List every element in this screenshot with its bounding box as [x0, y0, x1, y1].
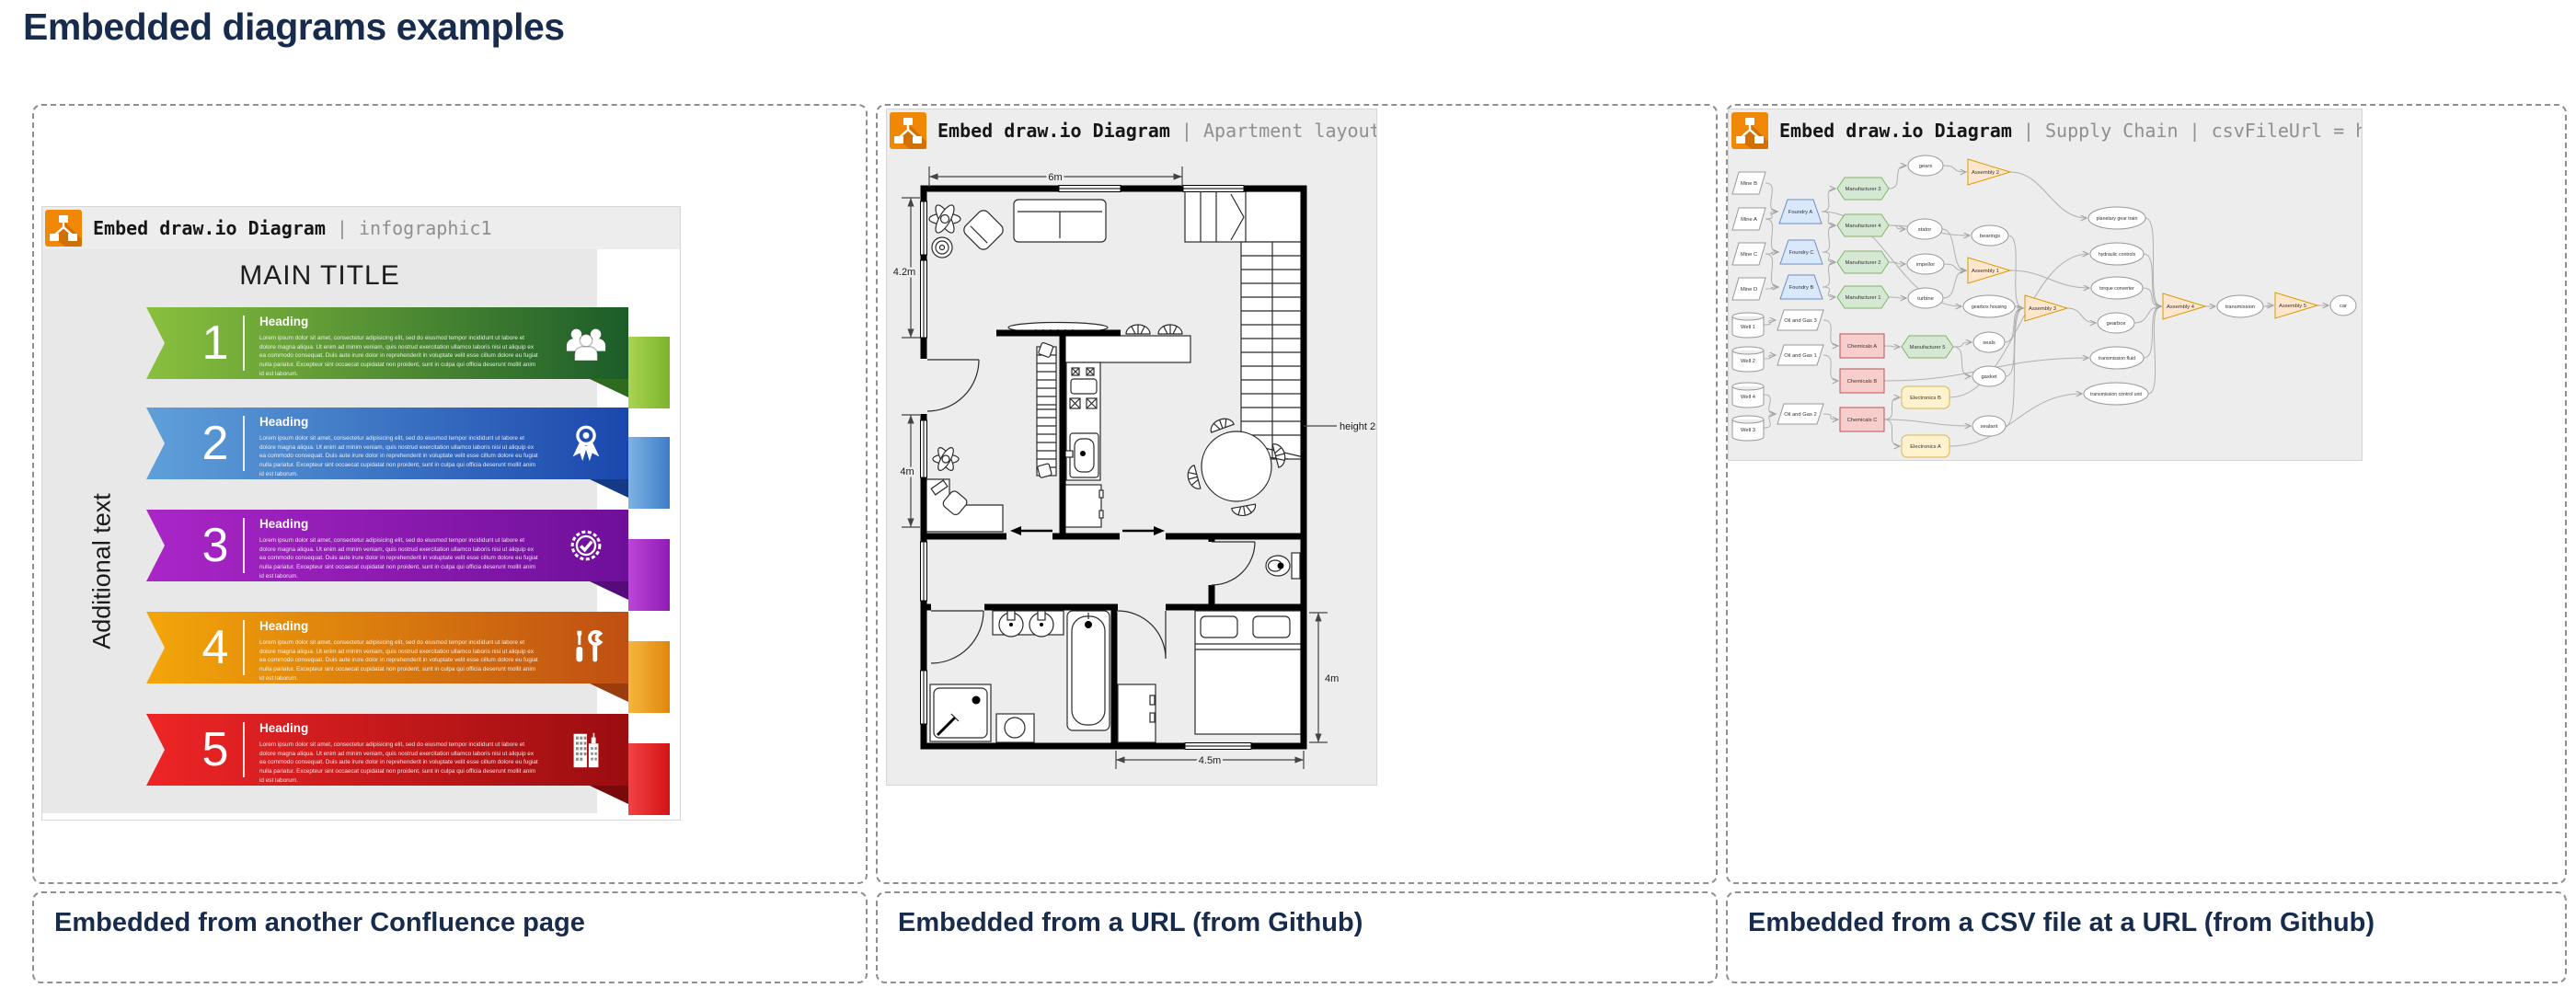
svg-text:Manufacturer 1: Manufacturer 1: [1846, 295, 1881, 301]
drawio-macro-header: Embed draw.io Diagram | Apartment layout: [887, 109, 1376, 152]
svg-text:Well 2: Well 2: [1741, 359, 1755, 364]
svg-text:Chemicals B: Chemicals B: [1847, 379, 1878, 385]
infographic-banner: 3 Heading Lorem ipsum dolor sit amet, co…: [146, 510, 628, 581]
dim-bottom: 4.5m: [1199, 755, 1221, 766]
graph-node-man2: Manufacturer 2: [1837, 251, 1889, 273]
graph-edge: [1822, 189, 1835, 212]
graph-edge: [1889, 166, 1906, 189]
graph-edge: [1889, 262, 1905, 264]
svg-text:car: car: [2340, 304, 2347, 309]
svg-text:transmission control unit: transmission control unit: [2090, 392, 2142, 397]
graph-edge: [1765, 287, 1778, 289]
graph-edge: [1823, 414, 1838, 419]
drawio-logo-icon: [890, 112, 926, 149]
svg-text:gearbox: gearbox: [2107, 321, 2126, 327]
graph-edge: [1823, 287, 1835, 297]
graph-node-og1: Oil and Gas 1: [1777, 345, 1823, 365]
graph-node-og3: Oil and Gas 3: [1777, 310, 1823, 330]
graph-edge: [1823, 252, 1835, 262]
infographic-body-text: Lorem ipsum dolor sit amet, consectetur …: [259, 334, 540, 379]
graph-edge: [1943, 166, 1966, 172]
graph-node-mineA: Mine A: [1732, 208, 1765, 230]
svg-text:Foundry A: Foundry A: [1788, 210, 1813, 215]
graph-edge: [1884, 419, 1971, 426]
infographic-body-text: Lorem ipsum dolor sit amet, consectetur …: [259, 536, 540, 581]
graph-node-car: car: [2330, 295, 2356, 316]
infographic-body-text: Lorem ipsum dolor sit amet, consectetur …: [259, 638, 540, 684]
infographic-ribbon-fold: [590, 379, 628, 397]
graph-edge: [1823, 355, 1838, 381]
svg-text:stator: stator: [1918, 227, 1932, 233]
graph-node-bearings: bearings: [1972, 225, 2008, 246]
infographic-divider: [243, 316, 245, 371]
graph-node-impellor: impellor: [1907, 254, 1944, 274]
graph-node-mineB: Mine B: [1732, 172, 1765, 194]
svg-text:transmission fluid: transmission fluid: [2099, 356, 2135, 362]
infographic-step-number: 5: [183, 714, 247, 786]
drawio-embed-infographic[interactable]: Embed draw.io Diagram | infographic1 MAI…: [41, 206, 681, 821]
infographic-ribbon-tail: [628, 539, 670, 611]
graph-edge: [2008, 236, 2023, 308]
graph-node-asm5: Assembly 5: [2275, 293, 2317, 318]
svg-text:torque converter: torque converter: [2099, 286, 2134, 292]
graph-node-gbhousing: gearbox housing: [1963, 295, 2015, 317]
badge-check-icon: [565, 524, 607, 567]
graph-node-mineC: Mine C: [1732, 243, 1765, 265]
graph-edge: [1884, 397, 1900, 419]
infographic-ribbon-tail: [628, 437, 670, 509]
svg-text:Manufacturer 2: Manufacturer 2: [1846, 260, 1881, 266]
macro-subtitle: | Apartment layout: [1181, 120, 1377, 142]
svg-text:Assembly 1: Assembly 1: [1972, 269, 1999, 274]
svg-text:Electronics B: Electronics B: [1910, 396, 1941, 401]
infographic-ribbon-fold: [590, 684, 628, 702]
macro-title: Embed draw.io Diagram: [937, 120, 1170, 142]
graph-edge: [1764, 414, 1776, 428]
caption-text: Embedded from a CSV file at a URL (from …: [1728, 893, 2565, 953]
graph-node-asm2: Assembly 2: [1968, 159, 2010, 185]
city-icon: [565, 729, 607, 771]
infographic-step-number: 1: [183, 307, 247, 379]
confluence-page: Embedded diagrams examples Embedded from…: [0, 0, 2576, 988]
svg-text:gasket: gasket: [1981, 374, 1996, 380]
graph-node-asm4: Assembly 4: [2163, 293, 2205, 319]
graph-node-sealant: sealant: [1972, 416, 2006, 436]
graph-node-elecA: Electronics A: [1902, 435, 1949, 457]
graph-edge: [1949, 394, 2082, 446]
infographic-banner: 4 Heading Lorem ipsum dolor sit amet, co…: [146, 612, 628, 684]
badge-check-icon: [565, 524, 607, 567]
svg-text:Well 1: Well 1: [1741, 325, 1755, 330]
graph-edge: [1884, 419, 1900, 446]
people-icon: [565, 322, 607, 364]
graph-edge: [1765, 212, 1777, 219]
svg-text:Chemicals C: Chemicals C: [1847, 418, 1878, 423]
infographic-divider: [243, 620, 245, 675]
macro-subtitle: | Supply Chain | csvFileUrl = ht: [2023, 120, 2363, 142]
apartment-floorplan: 6m 4.2m 4m 4m 4.5m height 2m: [887, 109, 1377, 786]
graph-node-foundryB: Foundry B: [1780, 275, 1823, 299]
svg-text:Mine D: Mine D: [1741, 287, 1757, 293]
graph-edge: [2010, 270, 2089, 288]
graph-edge: [2263, 305, 2273, 306]
graph-node-man4: Manufacturer 4: [1837, 214, 1889, 236]
graph-node-well2: Well 2: [1732, 347, 1764, 372]
svg-text:bearings: bearings: [1980, 234, 2000, 239]
svg-text:Mine A: Mine A: [1741, 217, 1757, 223]
drawio-macro-header: Embed draw.io Diagram | infographic1: [42, 207, 680, 249]
infographic-heading: Heading: [259, 517, 308, 531]
svg-text:Assembly 3: Assembly 3: [2029, 306, 2056, 312]
graph-edge: [2144, 306, 2161, 358]
svg-text:Mine C: Mine C: [1741, 252, 1757, 258]
graph-node-chemC: Chemicals C: [1840, 408, 1884, 431]
graph-node-stator: stator: [1907, 219, 1942, 239]
graph-edge: [2143, 288, 2161, 306]
graph-edge: [1764, 395, 1776, 414]
graph-node-turbine: turbine: [1908, 288, 1943, 308]
graph-node-chemB: Chemicals B: [1840, 369, 1884, 393]
macro-title: Embed draw.io Diagram: [1779, 120, 2012, 142]
macro-subtitle: | infographic1: [337, 217, 492, 239]
svg-text:Foundry C: Foundry C: [1788, 250, 1813, 256]
macro-title: Embed draw.io Diagram: [93, 217, 326, 239]
graph-node-transmission: transmission: [2217, 295, 2263, 317]
graph-node-asm3: Assembly 3: [2025, 295, 2067, 321]
graph-node-transfluid: transmission fluid: [2090, 347, 2144, 369]
graph-edge: [1764, 320, 1776, 325]
svg-text:seals: seals: [1983, 340, 1995, 346]
graph-edge: [1823, 320, 1838, 346]
graph-node-seals: seals: [1973, 332, 2005, 352]
graph-edge: [1953, 347, 1971, 376]
graph-edge: [1823, 225, 1835, 252]
svg-text:Oil and Gas 1: Oil and Gas 1: [1784, 353, 1816, 359]
infographic-body-text: Lorem ipsum dolor sit amet, consectetur …: [259, 434, 540, 479]
drawio-embed-supply-chain[interactable]: Mine BMine AMine CMine DWell 1Well 2Well…: [1728, 109, 2363, 461]
infographic-main-title: MAIN TITLE: [42, 260, 597, 292]
medal-icon: [565, 422, 607, 465]
infographic-divider: [243, 518, 245, 573]
svg-text:Assembly 2: Assembly 2: [1972, 170, 1999, 176]
dim-right: 4m: [1325, 673, 1339, 684]
infographic-step-number: 2: [183, 408, 247, 479]
graph-node-elecB: Electronics B: [1902, 386, 1949, 408]
infographic-ribbon-fold: [590, 479, 628, 498]
page-title: Embedded diagrams examples: [23, 6, 565, 49]
supply-chain-graph: Mine BMine AMine CMine DWell 1Well 2Well…: [1729, 109, 2363, 461]
graph-edge: [2010, 172, 2087, 218]
caption-text: Embedded from another Confluence page: [34, 893, 866, 953]
svg-text:Oil and Gas 3: Oil and Gas 3: [1784, 318, 1816, 324]
infographic-divider: [243, 416, 245, 471]
svg-text:Manufacturer 3: Manufacturer 3: [1846, 187, 1881, 192]
medal-icon: [565, 422, 607, 465]
dim-top: 6m: [1048, 172, 1062, 183]
svg-text:Well 3: Well 3: [1741, 428, 1755, 433]
infographic-heading: Heading: [259, 315, 308, 328]
svg-text:Manufacturer 5: Manufacturer 5: [1910, 345, 1946, 350]
graph-node-well3: Well 3: [1732, 416, 1764, 441]
infographic-body-text: Lorem ipsum dolor sit amet, consectetur …: [259, 741, 540, 786]
svg-text:Foundry B: Foundry B: [1789, 285, 1814, 291]
graph-node-foundryC: Foundry C: [1780, 240, 1823, 264]
graph-edge: [1943, 270, 1966, 298]
graph-node-og2: Oil and Gas 2: [1777, 404, 1823, 424]
graph-node-mineD: Mine D: [1732, 278, 1765, 300]
caption-cell-infographic: Embedded from another Confluence page: [32, 891, 868, 983]
svg-text:turbine: turbine: [1917, 296, 1934, 302]
graph-node-gearbox: gearbox: [2098, 313, 2134, 333]
infographic-ribbon-fold: [590, 786, 628, 804]
graph-node-well4: Well 4: [1732, 383, 1764, 408]
graph-node-hydctrl: hydraulic controls: [2090, 243, 2144, 265]
drawio-embed-apartment[interactable]: 6m 4.2m 4m 4m 4.5m height 2m: [886, 109, 1377, 786]
svg-text:impellor: impellor: [1916, 262, 1935, 268]
svg-text:Electronics A: Electronics A: [1910, 444, 1941, 450]
graph-edge: [1822, 212, 1835, 225]
graph-node-gears: gears: [1908, 155, 1943, 176]
graph-edge: [2067, 308, 2096, 323]
graph-node-chemA: Chemicals A: [1840, 334, 1884, 358]
svg-text:Oil and Gas 2: Oil and Gas 2: [1784, 412, 1816, 418]
graph-edge: [2148, 306, 2161, 394]
drawio-macro-header: Embed draw.io Diagram | Supply Chain | c…: [1729, 109, 2362, 152]
graph-edge: [2006, 308, 2023, 426]
drawio-logo-icon: [1731, 112, 1768, 149]
graph-node-gasket: gasket: [1972, 366, 2006, 386]
graph-edge: [1765, 219, 1778, 252]
infographic-heading: Heading: [259, 415, 308, 429]
infographic-ribbon-fold: [590, 581, 628, 600]
infographic-banner: 1 Heading Lorem ipsum dolor sit amet, co…: [146, 307, 628, 379]
infographic-ribbon-tail: [628, 337, 670, 408]
people-icon: [565, 322, 607, 364]
svg-text:Chemicals A: Chemicals A: [1847, 344, 1877, 350]
graph-node-man5: Manufacturer 5: [1902, 336, 1953, 358]
infographic-banner: 2 Heading Lorem ipsum dolor sit amet, co…: [146, 408, 628, 479]
graph-edge: [1823, 262, 1835, 287]
infographic-heading: Heading: [259, 619, 308, 633]
graph-edge: [1765, 254, 1778, 287]
graph-node-foundryA: Foundry A: [1779, 200, 1822, 224]
graph-node-man3: Manufacturer 3: [1837, 178, 1889, 200]
graph-node-tcu: transmission control unit: [2084, 383, 2148, 405]
graph-node-asm1: Assembly 1: [1968, 258, 2010, 283]
infographic-step-number: 4: [183, 612, 247, 684]
svg-text:sealant: sealant: [1981, 424, 1998, 430]
svg-text:gears: gears: [1919, 164, 1933, 169]
drawio-logo-icon: [45, 210, 82, 247]
infographic-banner: 5 Heading Lorem ipsum dolor sit amet, co…: [146, 714, 628, 786]
infographic-ribbon-tail: [628, 641, 670, 713]
infographic-image: MAIN TITLE Additional text 1 Heading Lor…: [42, 249, 681, 821]
infographic-ribbon-tail: [628, 743, 670, 815]
graph-edge: [1953, 342, 1972, 347]
svg-text:Manufacturer 4: Manufacturer 4: [1846, 224, 1882, 229]
svg-text:Assembly 4: Assembly 4: [2167, 304, 2195, 310]
dim-height-note: height 2m: [1340, 421, 1377, 432]
caption-text: Embedded from a URL (from Github): [878, 893, 1716, 953]
infographic-divider: [243, 722, 245, 777]
infographic-row: 5 Heading Lorem ipsum dolor sit amet, co…: [42, 714, 681, 821]
graph-node-torqueconv: torque converter: [2091, 277, 2143, 299]
infographic-step-number: 3: [183, 510, 247, 581]
city-icon: [565, 729, 607, 771]
graph-edge: [1884, 346, 1900, 347]
dim-left-upper: 4.2m: [893, 267, 915, 278]
graph-edge: [1765, 183, 1777, 212]
svg-text:planetary gear train: planetary gear train: [2097, 216, 2138, 222]
caption-cell-apartment: Embedded from a URL (from Github): [876, 891, 1718, 983]
svg-text:Well 4: Well 4: [1741, 395, 1756, 400]
svg-text:hydraulic controls: hydraulic controls: [2099, 252, 2136, 258]
dim-left-lower: 4m: [900, 466, 914, 477]
graph-node-man1: Manufacturer 1: [1837, 286, 1889, 308]
graph-edge: [1764, 355, 1776, 359]
caption-cell-supply-chain: Embedded from a CSV file at a URL (from …: [1726, 891, 2567, 983]
svg-text:Mine B: Mine B: [1741, 181, 1757, 187]
graph-edge: [1889, 297, 1906, 298]
svg-text:transmission: transmission: [2225, 304, 2256, 310]
graph-node-well1: Well 1: [1732, 313, 1764, 338]
infographic-heading: Heading: [259, 721, 308, 735]
svg-text:Assembly 5: Assembly 5: [2279, 304, 2306, 309]
tools-icon: [565, 626, 607, 669]
svg-text:gearbox housing: gearbox housing: [1972, 304, 2007, 310]
tools-icon: [565, 626, 607, 669]
graph-node-pgtrain: planetary gear train: [2088, 207, 2145, 229]
